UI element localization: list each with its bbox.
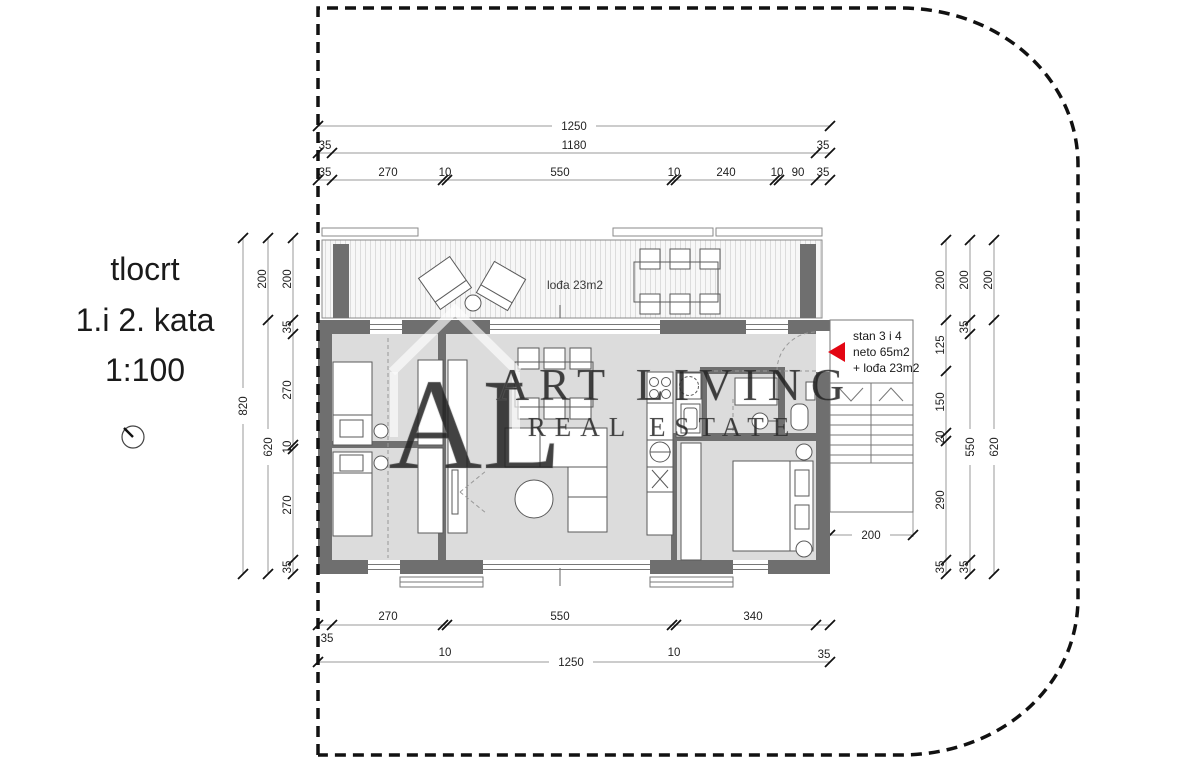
svg-text:1250: 1250 (558, 657, 584, 669)
svg-text:270: 270 (282, 380, 294, 399)
title-block: tlocrt 1.i 2. kata 1:100 (76, 251, 215, 448)
svg-text:1250: 1250 (561, 121, 587, 133)
svg-text:125: 125 (935, 335, 947, 354)
plan-subtitle: 1.i 2. kata (76, 302, 215, 338)
svg-text:1180: 1180 (562, 140, 587, 152)
svg-text:35: 35 (817, 140, 830, 152)
svg-text:35: 35 (282, 321, 294, 334)
floor-plan-page: tlocrt 1.i 2. kata 1:100 1250 35 1180 35 (0, 0, 1200, 766)
dim-left-outer: 820 (236, 233, 250, 579)
svg-text:200: 200 (861, 530, 880, 542)
dim-right-inner: 200 125 150 20 290 35 (935, 235, 951, 579)
svg-text:90: 90 (792, 167, 805, 179)
svg-text:270: 270 (378, 611, 397, 623)
stool (374, 424, 388, 438)
nightstand (796, 444, 812, 460)
floor-plan-canvas: tlocrt 1.i 2. kata 1:100 1250 35 1180 35 (0, 0, 1200, 766)
dim-left-mid: 200 620 (257, 233, 275, 579)
svg-text:200: 200 (959, 270, 971, 289)
svg-text:20: 20 (935, 431, 947, 444)
svg-text:200: 200 (935, 270, 947, 289)
railing-segment (613, 228, 713, 236)
pillow (795, 505, 809, 529)
svg-text:35: 35 (817, 167, 830, 179)
svg-text:200: 200 (257, 269, 269, 288)
north-indicator-icon (122, 426, 144, 448)
unit-area: neto 65m2 (853, 345, 910, 359)
plan-scale: 1:100 (105, 352, 185, 388)
svg-text:10: 10 (439, 647, 452, 659)
svg-text:620: 620 (989, 437, 1001, 456)
pillow (340, 455, 363, 471)
svg-text:290: 290 (935, 490, 947, 509)
dim-top-row1: 1250 (313, 120, 835, 133)
svg-text:550: 550 (965, 437, 977, 456)
watermark-line1: ART LIVING (496, 359, 854, 410)
svg-text:340: 340 (743, 611, 762, 623)
svg-text:35: 35 (319, 167, 332, 179)
railing-segment (322, 228, 418, 236)
svg-text:35: 35 (319, 140, 332, 152)
svg-text:35: 35 (959, 321, 971, 334)
wardrobe (681, 443, 701, 560)
stool (374, 456, 388, 470)
pillow (795, 470, 809, 496)
master-bedroom (681, 443, 813, 560)
loggia-side-table (465, 295, 481, 311)
loggia-pillar (333, 244, 349, 318)
dim-right-mid: 200 35 550 35 (959, 235, 977, 579)
svg-text:35: 35 (818, 649, 831, 661)
loggia-label: lođa 23m2 (547, 278, 603, 292)
dim-bottom-row2: 1250 (313, 656, 835, 669)
dim-stairs-width: 200 (825, 512, 918, 542)
dim-top-row3: 35 270 10 550 10 240 10 90 35 (313, 167, 835, 185)
svg-text:35: 35 (321, 633, 334, 645)
dim-left-inner: 200 35 270 10 270 35 (282, 233, 298, 579)
svg-text:10: 10 (282, 441, 294, 454)
pillow (340, 420, 363, 437)
svg-text:10: 10 (668, 647, 681, 659)
dim-bottom-row1: 35 270 10 550 10 340 35 (313, 611, 835, 661)
unit-loggia-area: + lođa 23m2 (853, 361, 920, 375)
unit-name: stan 3 i 4 (853, 329, 902, 343)
svg-text:10: 10 (439, 167, 452, 179)
svg-text:820: 820 (238, 396, 250, 415)
svg-text:270: 270 (282, 495, 294, 514)
svg-text:10: 10 (771, 167, 784, 179)
nightstand (796, 541, 812, 557)
dim-top-row2: 35 1180 35 (313, 140, 835, 158)
svg-text:35: 35 (959, 561, 971, 574)
svg-text:550: 550 (550, 167, 569, 179)
loggia: lođa 23m2 (322, 228, 822, 318)
svg-text:200: 200 (983, 270, 995, 289)
svg-text:270: 270 (378, 167, 397, 179)
railing-segment (716, 228, 822, 236)
watermark-line2: REAL ESTATE (528, 412, 799, 442)
svg-text:550: 550 (550, 611, 569, 623)
svg-text:10: 10 (668, 167, 681, 179)
svg-text:200: 200 (282, 269, 294, 288)
plan-title: tlocrt (110, 251, 179, 287)
svg-text:620: 620 (263, 437, 275, 456)
dim-right-outer: 200 620 (983, 235, 1001, 579)
svg-text:150: 150 (935, 392, 947, 411)
loggia-pillar (800, 244, 816, 318)
svg-text:35: 35 (282, 561, 294, 574)
svg-text:240: 240 (716, 167, 735, 179)
svg-text:35: 35 (935, 561, 947, 574)
